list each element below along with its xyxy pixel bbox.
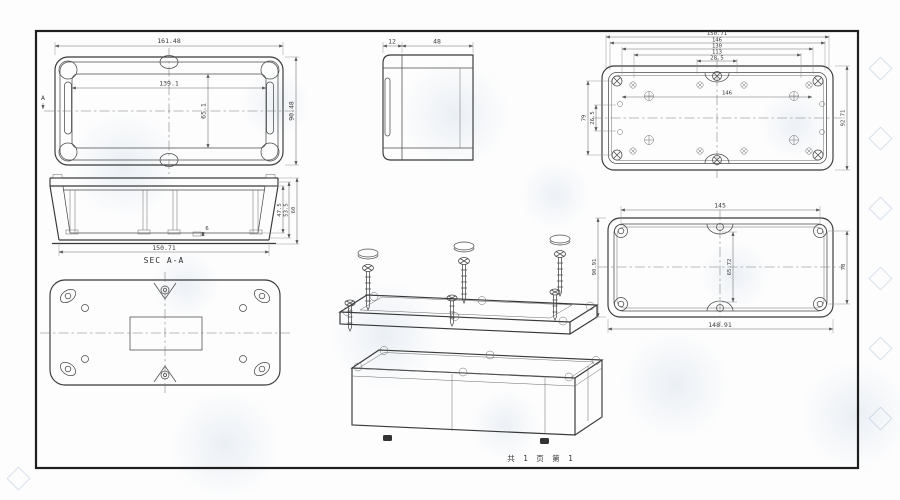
dim-inner-height-2: 47.5 bbox=[277, 203, 283, 216]
dim-lid-height: 12 bbox=[388, 38, 396, 46]
screw-cover-icon bbox=[261, 143, 279, 161]
hinge-slot bbox=[65, 82, 72, 134]
dim-side-pitch: 78 bbox=[841, 263, 847, 270]
lid-top-view: 161.48 90.48 139.1 65.1 A bbox=[41, 37, 299, 174]
dim-hole-pitch-depth: 79 bbox=[582, 115, 588, 122]
dim-inner-width: 146 bbox=[722, 91, 732, 97]
dim-overall-height: 60 bbox=[291, 207, 297, 214]
screw-icon bbox=[363, 251, 566, 311]
internal-rib bbox=[66, 190, 262, 236]
section-view: 150.71 SEC A-A 47.5 53.5 60 6 bbox=[50, 175, 299, 266]
dim-center-pitch: 26.5 bbox=[590, 111, 596, 124]
dim-stack-1: 150.71 bbox=[707, 31, 727, 37]
lid-interior-view: 145 148.91 90.91 78 65.72 bbox=[592, 202, 850, 334]
screw-cover-icon bbox=[261, 61, 279, 79]
cad-canvas: 161.48 90.48 139.1 65.1 A 12 48 bbox=[0, 0, 900, 500]
dim-overall-width: 148.91 bbox=[708, 321, 732, 329]
dim-overall-depth: 90.48 bbox=[288, 101, 296, 121]
drawing-sheet: 161.48 90.48 139.1 65.1 A 12 48 bbox=[0, 0, 900, 500]
screw-cover-icon bbox=[59, 143, 77, 161]
label-recess bbox=[130, 317, 202, 350]
screw-boss-icon bbox=[615, 224, 827, 312]
hinge-slot bbox=[267, 82, 274, 134]
dim-overall-depth: 90.91 bbox=[592, 259, 598, 276]
exploded-lid bbox=[340, 293, 597, 335]
base-interior-view: 146 150.71 146 130 113 28.5 92.71 79 26.… bbox=[582, 31, 851, 178]
dim-inner-depth: 65.1 bbox=[200, 103, 208, 119]
dim-inner-height-1: 53.5 bbox=[284, 203, 290, 216]
exploded-base bbox=[352, 347, 602, 436]
dim-inner-width: 139.1 bbox=[159, 80, 179, 88]
mounting-hole-icon bbox=[82, 305, 247, 363]
section-label: SEC A-A bbox=[144, 256, 185, 265]
page-footer: 共 1 页 第 1 bbox=[507, 453, 575, 463]
dim-overall-width: 161.48 bbox=[157, 37, 181, 45]
dim-boss-height: 6 bbox=[205, 226, 208, 232]
section-mark-a: A bbox=[41, 94, 45, 102]
dim-center-pitch: 65.72 bbox=[727, 259, 733, 276]
seal-cap-icon bbox=[358, 235, 570, 259]
dim-top-pitch: 145 bbox=[714, 202, 726, 210]
dim-overall-depth: 92.71 bbox=[841, 110, 847, 127]
side-view: 12 48 bbox=[383, 38, 473, 161]
dim-body-height: 48 bbox=[433, 38, 441, 46]
hinge-slot bbox=[385, 78, 390, 136]
screw-cover-icon bbox=[59, 61, 77, 79]
bottom-view bbox=[40, 272, 290, 395]
exploded-view bbox=[340, 235, 602, 444]
dim-section-width: 150.71 bbox=[152, 244, 176, 252]
bottom-plug-icon bbox=[383, 435, 392, 441]
dim-stack-5: 28.5 bbox=[710, 56, 723, 62]
bottom-plug-icon bbox=[540, 438, 549, 444]
